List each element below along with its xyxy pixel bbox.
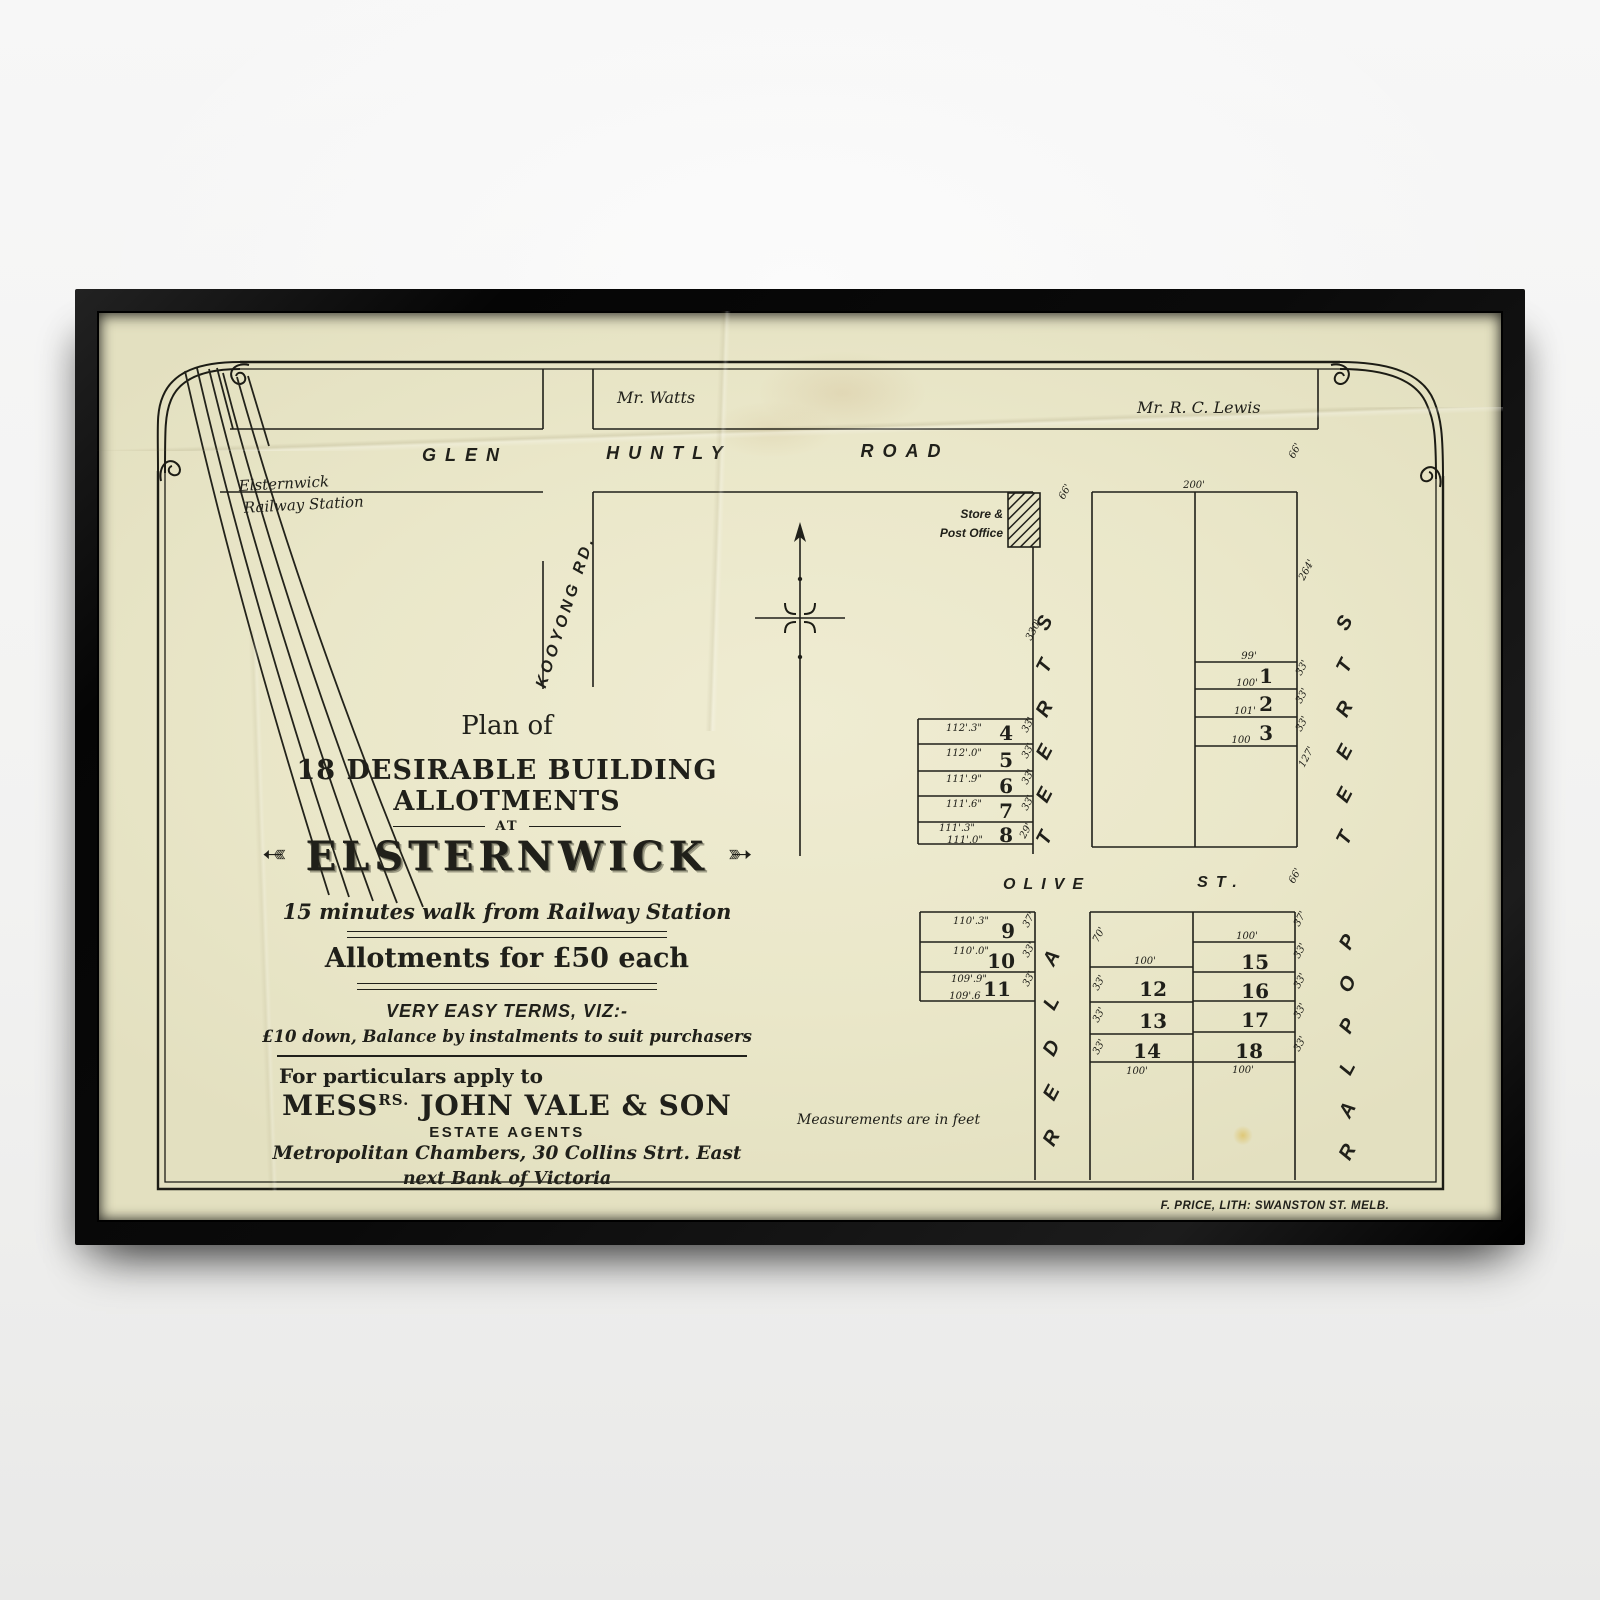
dim-label: 33' (1091, 974, 1108, 993)
dim-label: 100' (1232, 1065, 1254, 1076)
owner-label-watts: Mr. Watts (616, 388, 695, 407)
poplar-street-label-lower: P O P L A R (1334, 931, 1361, 1164)
dim-label: 100 (1231, 735, 1251, 746)
dim-label: 100' (1134, 956, 1156, 967)
station-label: Elsternwick Railway Station (237, 471, 364, 517)
street-letter: T (1332, 826, 1358, 849)
store-label-line1: Store & (960, 507, 1003, 521)
dim-label: 111'.0" (947, 835, 983, 846)
road-label-huntly: HUNTLY (606, 443, 732, 463)
dim-label: 110'.3" (953, 916, 989, 927)
road-label-olive-st: ST. (1197, 874, 1245, 891)
dim-label: 33' (1091, 1038, 1108, 1057)
street-letter: T (1032, 826, 1058, 849)
lot-number: 14 (1133, 1039, 1161, 1063)
street-letter: A (1038, 947, 1065, 971)
dim-label: 127' (1297, 745, 1317, 769)
store-label-line2: Post Office (940, 526, 1003, 540)
lot-number: 11 (983, 977, 1011, 1001)
street-letter: E (1332, 784, 1358, 807)
dim-label: 33' (1091, 1006, 1108, 1025)
dim-label: 70' (1091, 926, 1108, 945)
map-paper: Mr. Watts Mr. R. C. Lewis GLEN HUNTLY RO… (97, 311, 1503, 1222)
lot-number: 15 (1241, 950, 1269, 974)
dim-label: 109'.9" (951, 974, 987, 985)
street-letter: E (1032, 784, 1058, 807)
dim-label: 100' (1236, 931, 1258, 942)
road-label-road: ROAD (861, 441, 950, 461)
road-label-glen: GLEN (422, 445, 508, 465)
corner-scroll-top-right (1331, 362, 1443, 487)
street-letter: S (1332, 612, 1358, 635)
store-building (1008, 493, 1040, 547)
glen-huntly-road-lines (220, 369, 1318, 492)
street-letter: P (1335, 931, 1361, 954)
dim-label: 66' (1057, 483, 1074, 502)
dim-label: 101' (1234, 706, 1256, 717)
street-letter: P (1335, 1015, 1361, 1038)
lot-number: 5 (999, 748, 1013, 772)
street-letter: R (1032, 697, 1058, 721)
lot-number: 17 (1241, 1008, 1269, 1032)
lot-number: 10 (987, 949, 1015, 973)
dim-label: 99' (1241, 651, 1256, 662)
station-label-line2: Railway Station (242, 493, 364, 517)
lot-number: 7 (999, 799, 1013, 823)
owner-label-lewis: Mr. R. C. Lewis (1136, 398, 1261, 417)
lot-number: 8 (999, 823, 1013, 847)
street-letter: L (1039, 993, 1064, 1014)
street-letter: L (1335, 1058, 1360, 1079)
lot-number: 9 (1001, 919, 1015, 943)
lot-number: 13 (1139, 1009, 1167, 1033)
compass-rose (755, 522, 845, 856)
dim-label: 200' (1182, 480, 1205, 491)
lot-number: 16 (1241, 979, 1269, 1003)
road-label-olive: OLIVE (1003, 876, 1091, 893)
dim-label: 264' (1296, 558, 1316, 583)
street-letter: D (1039, 1037, 1065, 1060)
street-letter: O (1334, 972, 1361, 996)
railway-tracks (185, 368, 423, 907)
plan-drawing: Mr. Watts Mr. R. C. Lewis GLEN HUNTLY RO… (97, 311, 1503, 1222)
street-letter: E (1332, 741, 1358, 764)
dim-label: 100' (1126, 1066, 1148, 1077)
lot-number: 18 (1235, 1039, 1263, 1063)
lithographer-credit: F. PRICE, LITH: SWANSTON ST. MELB. (1161, 1200, 1390, 1212)
dim-label: 66' (1287, 867, 1304, 886)
street-letter: T (1332, 654, 1358, 677)
dim-label: 111'.9" (946, 774, 982, 785)
lot-number: 2 (1259, 692, 1273, 716)
lot-number: 4 (999, 721, 1013, 745)
measurements-note: Measurements are in feet (796, 1112, 980, 1128)
street-letter: E (1032, 741, 1058, 764)
dim-label: 100' (1236, 678, 1258, 689)
alder-street-label-lower: A L D E R (1038, 947, 1065, 1150)
street-letter: A (1334, 1099, 1361, 1123)
dim-label: 111'.6" (946, 799, 982, 810)
dim-label: 66' (1287, 442, 1304, 461)
dim-label: 112'.0" (946, 748, 982, 759)
alder-street-label-upper: S T R E E T (1032, 612, 1059, 849)
street-letter: R (1332, 697, 1358, 721)
poplar-street-label-upper: S T R E E T (1332, 612, 1359, 849)
dim-label: 110'.0" (953, 946, 989, 957)
lot-number: 6 (999, 774, 1013, 798)
street-letter: T (1032, 654, 1058, 677)
lot-number: 3 (1259, 721, 1273, 745)
street-letter: R (1039, 1126, 1065, 1150)
lot-number: 12 (1139, 977, 1167, 1001)
street-letter: R (1335, 1140, 1361, 1164)
dim-label: 111'.3" (939, 823, 975, 834)
lot-number: 1 (1259, 664, 1273, 688)
picture-frame: Mr. Watts Mr. R. C. Lewis GLEN HUNTLY RO… (75, 289, 1525, 1245)
dim-label: 112'.3" (946, 723, 982, 734)
street-letter: E (1039, 1082, 1065, 1105)
dim-label: 109'.6 (949, 991, 981, 1002)
